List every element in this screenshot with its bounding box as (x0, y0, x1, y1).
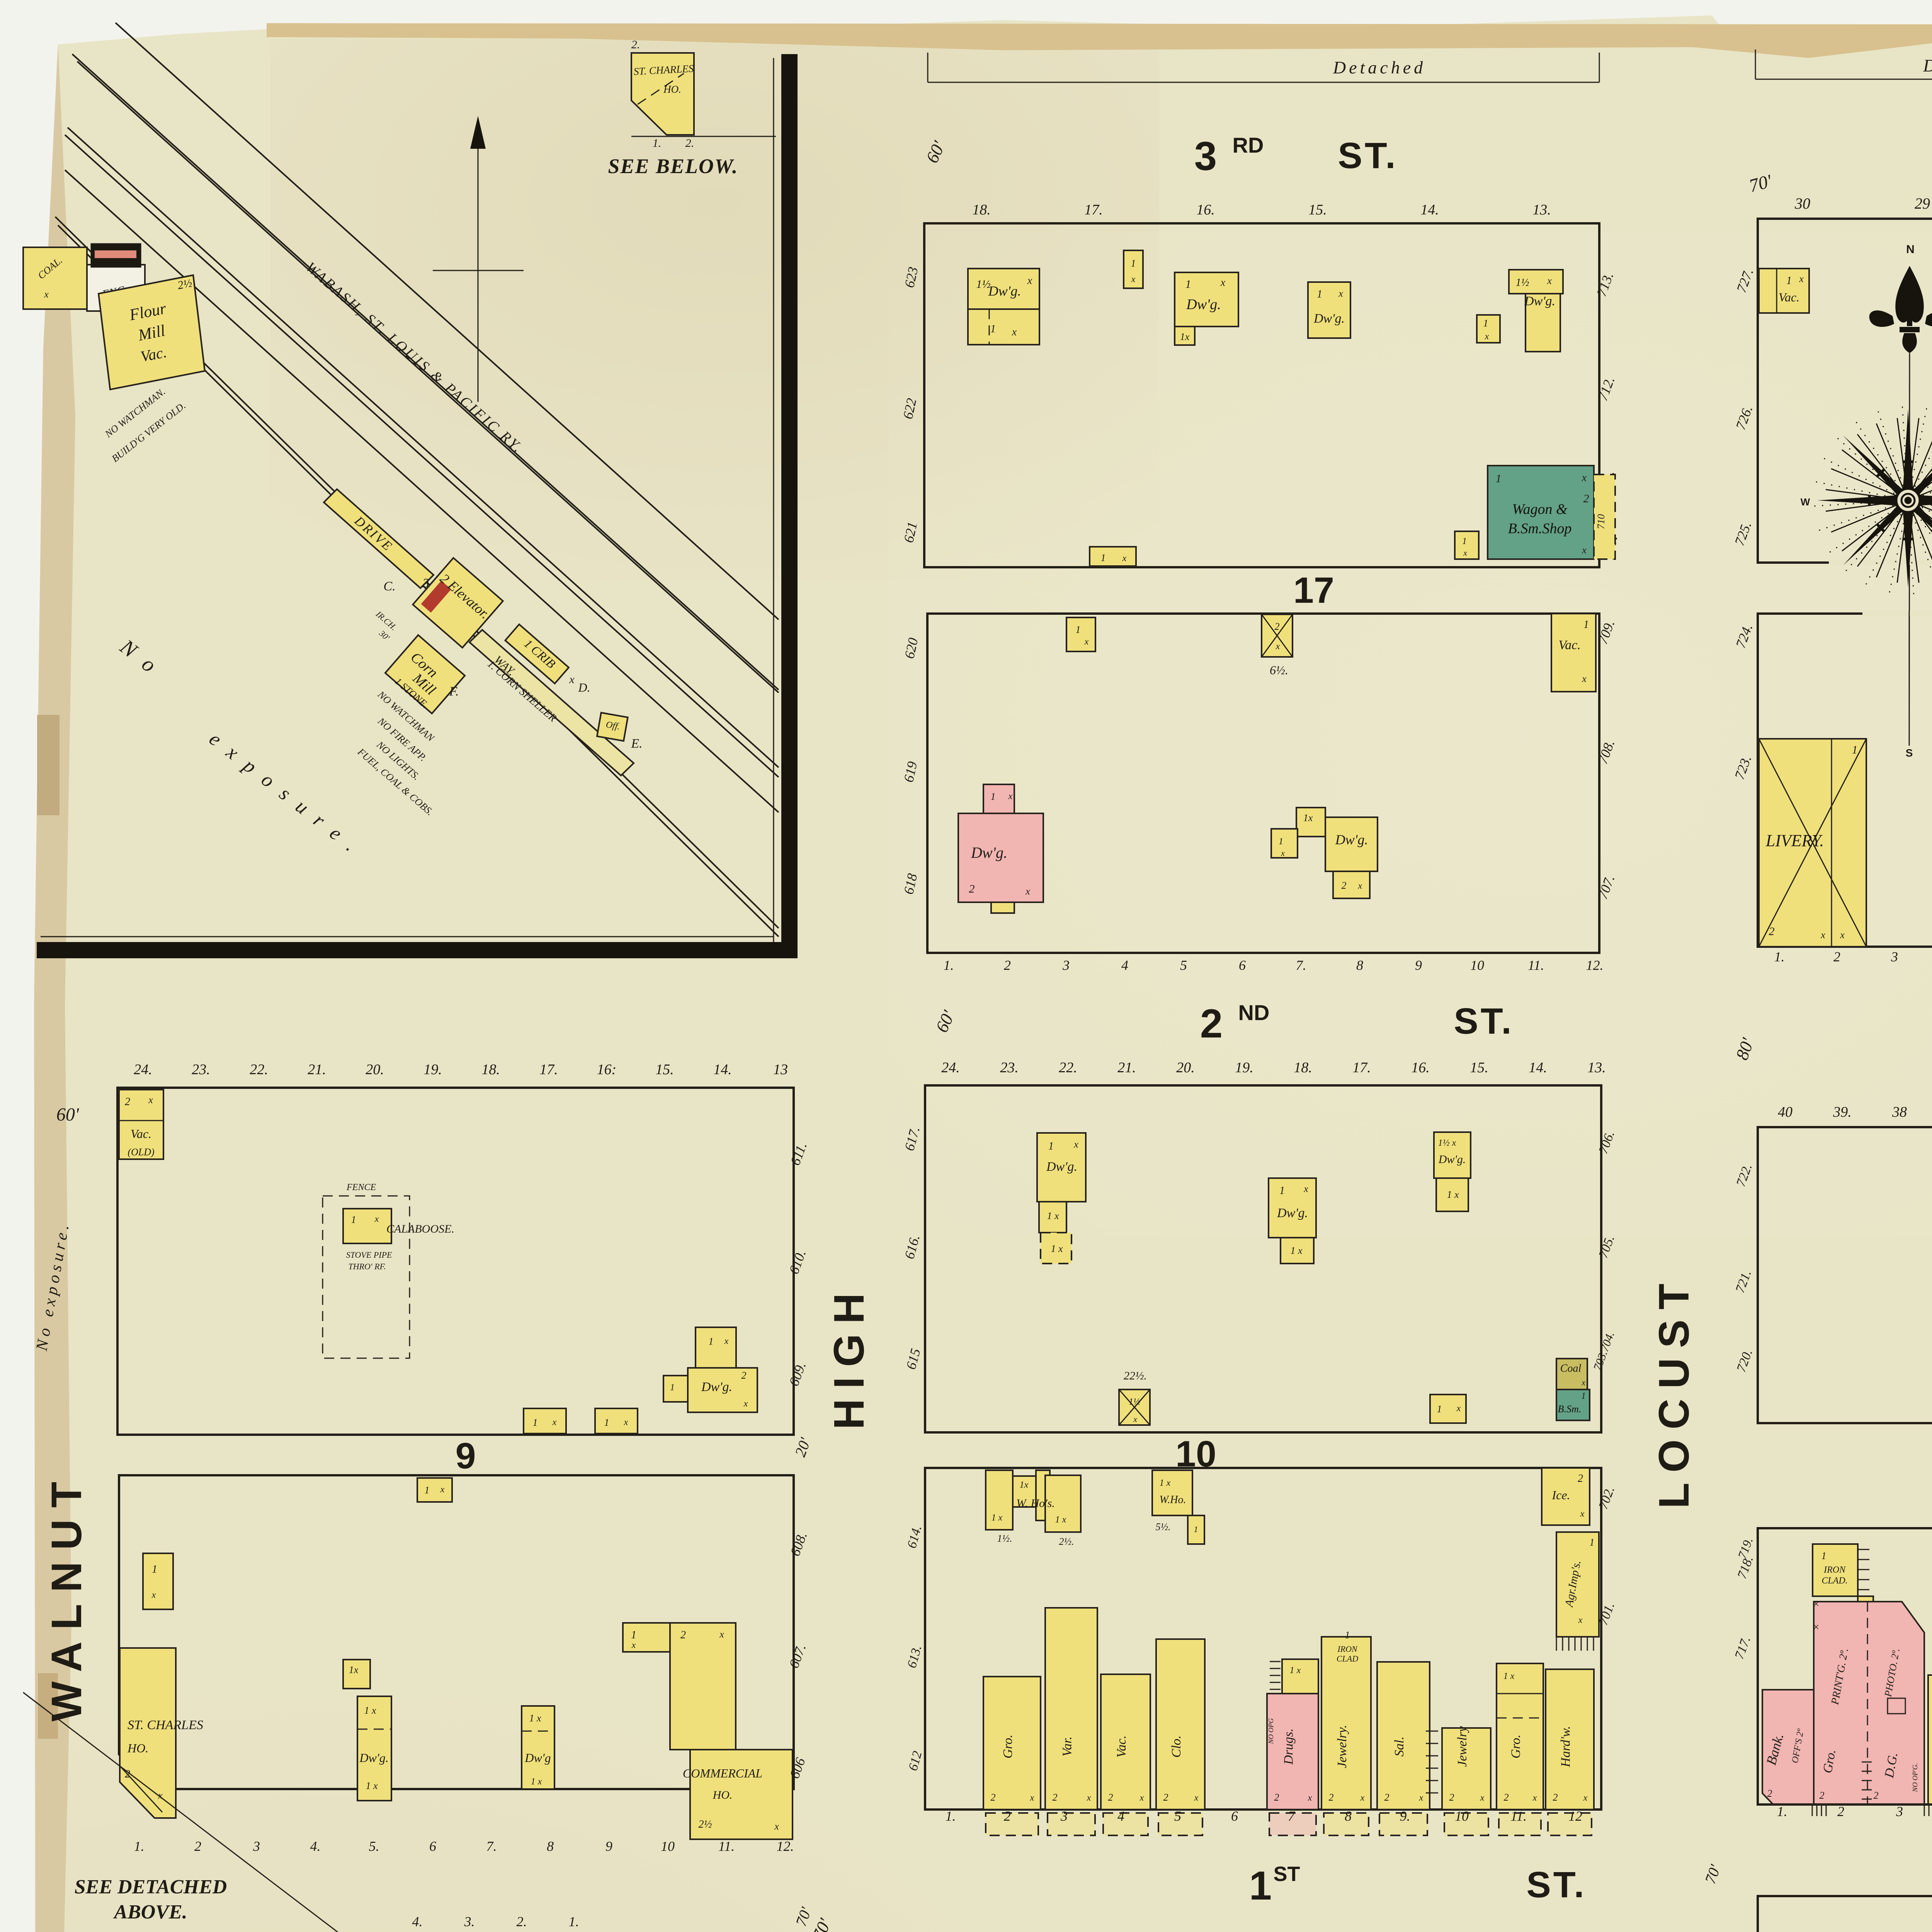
svg-text:1: 1 (1583, 619, 1589, 631)
svg-text:1 x: 1 x (529, 1713, 541, 1724)
svg-text:E.: E. (631, 736, 642, 751)
svg-text:1: 1 (1317, 288, 1322, 300)
svg-text:Vac.: Vac. (1779, 290, 1799, 304)
svg-text:8: 8 (1345, 1808, 1352, 1824)
svg-text:18.: 18. (972, 202, 991, 218)
svg-text:20.: 20. (1176, 1060, 1195, 1076)
svg-text:9: 9 (1415, 957, 1422, 973)
svg-text:Jewelry.: Jewelry. (1335, 1725, 1349, 1768)
svg-text:1x: 1x (1303, 812, 1313, 823)
svg-text:11.: 11. (1510, 1808, 1527, 1824)
svg-text:1½.: 1½. (997, 1533, 1012, 1544)
svg-text:2: 2 (1108, 1792, 1113, 1803)
svg-text:1 x: 1 x (1290, 1665, 1301, 1675)
svg-text:SEE DETACHED: SEE DETACHED (75, 1876, 227, 1898)
svg-text:1: 1 (533, 1417, 538, 1428)
svg-text:x: x (1582, 472, 1587, 484)
svg-text:1: 1 (604, 1417, 609, 1428)
svg-text:16:: 16: (597, 1061, 617, 1078)
svg-text:x: x (1358, 881, 1362, 891)
svg-text:24.: 24. (134, 1061, 152, 1078)
svg-text:15.: 15. (1470, 1060, 1488, 1076)
svg-text:Dw'g.: Dw'g. (988, 283, 1021, 299)
svg-text:8: 8 (1356, 957, 1363, 973)
svg-text:WALNUT: WALNUT (43, 1470, 90, 1721)
svg-text:Jewelry: Jewelry (1455, 1726, 1469, 1767)
svg-text:60': 60' (56, 1104, 79, 1125)
svg-text:x: x (1419, 1793, 1423, 1803)
svg-text:ST.: ST. (1338, 135, 1398, 176)
svg-text:W: W (1801, 496, 1810, 508)
svg-text:1: 1 (1590, 1537, 1595, 1548)
svg-text:1: 1 (1437, 1403, 1442, 1415)
svg-text:1: 1 (1786, 275, 1792, 287)
svg-text:3: 3 (1194, 134, 1217, 179)
svg-text:IRON: IRON (1337, 1644, 1358, 1654)
svg-text:Detached: Detached (1333, 58, 1426, 77)
svg-text:x: x (743, 1399, 748, 1409)
svg-text:W.Ho.: W.Ho. (1160, 1494, 1186, 1506)
svg-text:S: S (1906, 747, 1913, 759)
svg-text:1: 1 (1462, 536, 1467, 546)
svg-text:HO.: HO. (663, 83, 681, 95)
svg-text:1½: 1½ (1129, 1397, 1140, 1407)
svg-text:Dw'g.: Dw'g. (971, 844, 1007, 861)
svg-text:1: 1 (1131, 258, 1136, 269)
svg-text:1x: 1x (1020, 1480, 1029, 1490)
svg-text:×: × (1813, 1598, 1820, 1610)
svg-text:2: 2 (1504, 1792, 1509, 1803)
svg-text:x: x (1030, 1793, 1034, 1803)
svg-text:4.: 4. (412, 1914, 423, 1929)
svg-text:2: 2 (1200, 1001, 1223, 1046)
svg-text:2: 2 (1833, 949, 1840, 964)
svg-text:NO OP'G.: NO OP'G. (1911, 1763, 1919, 1793)
svg-text:x: x (1194, 1793, 1199, 1803)
svg-text:2: 2 (1004, 1808, 1011, 1824)
svg-text:1.: 1. (1774, 949, 1785, 964)
svg-text:16.: 16. (1196, 202, 1215, 218)
svg-text:FENCE: FENCE (346, 1182, 376, 1192)
svg-text:1: 1 (1185, 278, 1191, 291)
svg-text:2: 2 (1583, 492, 1589, 505)
svg-text:IRON: IRON (1823, 1565, 1846, 1575)
svg-text:Dw'g.: Dw'g. (359, 1751, 388, 1765)
svg-text:x: x (1463, 548, 1467, 558)
svg-text:4.: 4. (310, 1838, 321, 1854)
svg-text:Vac.: Vac. (131, 1127, 151, 1141)
svg-text:8: 8 (547, 1838, 554, 1854)
svg-text:Ice.: Ice. (1551, 1488, 1570, 1502)
svg-text:x: x (1485, 332, 1489, 342)
svg-text:21.: 21. (1117, 1060, 1136, 1076)
svg-text:3: 3 (422, 576, 429, 590)
svg-text:x: x (1532, 1793, 1537, 1803)
svg-text:18.: 18. (481, 1061, 500, 1078)
svg-text:9: 9 (456, 1435, 476, 1476)
svg-text:x: x (1012, 326, 1017, 338)
svg-text:9.: 9. (1400, 1808, 1410, 1824)
svg-text:16.: 16. (1411, 1060, 1430, 1076)
svg-text:x: x (148, 1094, 153, 1105)
svg-text:1 x: 1 x (1160, 1478, 1171, 1488)
svg-text:ND: ND (1238, 1000, 1270, 1025)
svg-text:2.: 2. (517, 1914, 527, 1929)
svg-text:Dw'g.: Dw'g. (1186, 296, 1221, 313)
svg-text:10: 10 (1470, 957, 1484, 973)
svg-text:19.: 19. (423, 1061, 442, 1078)
svg-text:21.: 21. (308, 1061, 326, 1078)
svg-text:C.: C. (383, 579, 395, 594)
svg-text:Vac.: Vac. (1114, 1735, 1129, 1758)
svg-text:1: 1 (1101, 552, 1106, 563)
svg-text:x: x (1582, 673, 1587, 684)
svg-text:30: 30 (1794, 195, 1810, 212)
svg-text:1: 1 (1279, 1185, 1285, 1197)
svg-text:Dw'g.: Dw'g. (1313, 311, 1345, 326)
svg-text:2: 2 (991, 1792, 996, 1803)
svg-text:15.: 15. (655, 1061, 674, 1078)
svg-text:1.: 1. (1777, 1804, 1787, 1819)
svg-text:1: 1 (1496, 472, 1502, 485)
svg-text:ABOVE.: ABOVE. (113, 1901, 187, 1923)
svg-text:5.: 5. (369, 1838, 379, 1854)
svg-text:RD: RD (1233, 133, 1264, 157)
svg-text:HO.: HO. (127, 1741, 148, 1755)
svg-text:CALABOOSE.: CALABOOSE. (386, 1223, 454, 1235)
svg-text:10: 10 (661, 1838, 675, 1854)
svg-text:2½.: 2½. (1059, 1536, 1074, 1547)
svg-text:3: 3 (253, 1838, 260, 1854)
svg-text:22.: 22. (1059, 1060, 1077, 1076)
svg-text:40: 40 (1778, 1104, 1793, 1120)
svg-text:x: x (1583, 1793, 1588, 1803)
svg-text:9: 9 (605, 1838, 612, 1854)
svg-text:1 x: 1 x (992, 1513, 1003, 1523)
svg-text:x: x (1025, 886, 1030, 897)
svg-text:COMMERCIAL: COMMERCIAL (683, 1766, 762, 1780)
svg-text:39.: 39. (1833, 1104, 1852, 1120)
svg-text:13: 13 (773, 1061, 788, 1078)
svg-text:x: x (624, 1417, 628, 1427)
svg-text:STOVE PIPE: STOVE PIPE (346, 1250, 392, 1260)
svg-text:Dw'g.: Dw'g. (1524, 294, 1555, 308)
svg-text:19.: 19. (1235, 1060, 1253, 1076)
svg-text:1.: 1. (653, 137, 662, 150)
svg-text:7: 7 (1288, 1808, 1296, 1824)
svg-text:13.: 13. (1587, 1060, 1606, 1076)
svg-text:Clo.: Clo. (1169, 1735, 1184, 1758)
svg-text:LIVERY.: LIVERY. (1765, 831, 1824, 850)
svg-text:×: × (1813, 1621, 1820, 1633)
svg-text:6: 6 (429, 1838, 436, 1854)
svg-text:2: 2 (1578, 1473, 1583, 1485)
svg-text:Var.: Var. (1060, 1736, 1075, 1757)
svg-text:B.Sm.Shop: B.Sm.Shop (1508, 520, 1572, 537)
svg-text:1 x: 1 x (1290, 1245, 1303, 1256)
svg-text:23.: 23. (192, 1061, 210, 1078)
svg-text:1 x: 1 x (1047, 1210, 1059, 1221)
svg-text:x: x (374, 1214, 379, 1224)
svg-text:2: 2 (1767, 1788, 1772, 1799)
svg-text:1 x: 1 x (366, 1780, 378, 1791)
svg-text:Dw'g.: Dw'g. (1438, 1153, 1466, 1166)
svg-text:x: x (1276, 641, 1280, 651)
svg-text:Dw'g.: Dw'g. (701, 1380, 732, 1394)
svg-text:1: 1 (991, 791, 996, 802)
svg-text:x: x (1580, 1509, 1585, 1519)
svg-text:x: x (719, 1629, 724, 1640)
svg-text:1: 1 (990, 323, 996, 335)
svg-text:1: 1 (1821, 1550, 1827, 1561)
svg-text:ST: ST (1273, 1862, 1300, 1886)
svg-text:2½: 2½ (699, 1818, 712, 1830)
svg-text:11.: 11. (718, 1838, 735, 1854)
svg-text:1: 1 (1581, 1391, 1586, 1401)
svg-text:x: x (1220, 277, 1226, 289)
svg-text:x: x (1139, 1793, 1144, 1803)
svg-text:x: x (44, 289, 49, 300)
svg-text:1.: 1. (569, 1914, 579, 1929)
svg-text:Coal: Coal (1560, 1362, 1582, 1374)
svg-text:12: 12 (1568, 1808, 1582, 1824)
svg-text:ST.: ST. (1526, 1864, 1586, 1905)
svg-text:x: x (1308, 1793, 1312, 1803)
svg-text:2: 2 (1342, 880, 1347, 891)
svg-text:2: 2 (969, 883, 975, 895)
svg-text:1 x: 1 x (364, 1705, 376, 1716)
svg-text:Gro.: Gro. (1001, 1735, 1015, 1759)
svg-text:1: 1 (1852, 743, 1858, 756)
svg-text:1: 1 (152, 1563, 157, 1575)
svg-text:1: 1 (1279, 837, 1283, 847)
svg-text:3: 3 (1062, 957, 1070, 973)
svg-text:15.: 15. (1308, 202, 1327, 218)
svg-text:W. Ho's.: W. Ho's. (1016, 1497, 1055, 1510)
svg-text:(OLD): (OLD) (128, 1146, 154, 1158)
svg-text:5: 5 (1180, 957, 1187, 973)
svg-text:2: 2 (1053, 1792, 1058, 1803)
svg-text:HO.: HO. (713, 1789, 733, 1801)
svg-text:x: x (1547, 275, 1552, 286)
svg-text:2: 2 (1449, 1792, 1454, 1803)
svg-text:2: 2 (1163, 1792, 1168, 1803)
svg-text:x: x (151, 1590, 156, 1600)
svg-text:D w'gs.: D w'gs. (1923, 56, 1932, 75)
svg-text:x: x (569, 673, 575, 686)
svg-text:x: x (1087, 1793, 1091, 1803)
svg-text:x: x (724, 1336, 729, 1346)
svg-text:1: 1 (1483, 318, 1488, 329)
svg-text:2: 2 (1820, 1790, 1825, 1801)
svg-text:S‌T. CHARLES: S‌T. CHARLES (128, 1718, 203, 1732)
svg-text:3: 3 (1060, 1808, 1068, 1824)
svg-text:x: x (1303, 1183, 1308, 1194)
svg-text:29: 29 (1915, 195, 1930, 212)
svg-text:Gro.: Gro. (1509, 1735, 1523, 1759)
svg-text:x: x (1027, 275, 1032, 287)
svg-text:1: 1 (1076, 624, 1081, 635)
svg-text:x: x (1820, 929, 1825, 940)
svg-text:NO OPG: NO OPG (1267, 1718, 1275, 1745)
svg-text:14.: 14. (1529, 1060, 1547, 1076)
svg-text:2: 2 (680, 1629, 686, 1641)
svg-text:x: x (1084, 637, 1089, 647)
svg-text:4: 4 (1117, 1808, 1124, 1824)
svg-text:11.: 11. (1528, 957, 1544, 973)
svg-text:2: 2 (1553, 1792, 1558, 1803)
svg-text:x: x (1073, 1139, 1078, 1150)
svg-text:THRO' RF.: THRO' RF. (348, 1262, 386, 1271)
svg-text:6: 6 (1231, 1808, 1238, 1824)
svg-text:x: x (1360, 1793, 1365, 1803)
svg-text:2: 2 (742, 1370, 747, 1381)
svg-text:1.: 1. (946, 1808, 956, 1824)
svg-text:Hard'w.: Hard'w. (1559, 1726, 1573, 1767)
svg-text:1: 1 (1249, 1863, 1272, 1908)
svg-text:1x: 1x (1180, 331, 1190, 342)
svg-text:2: 2 (1837, 1804, 1844, 1819)
svg-text:2: 2 (1004, 957, 1011, 973)
svg-text:SEE BELOW.: SEE BELOW. (608, 155, 738, 178)
svg-text:2: 2 (1874, 1790, 1879, 1801)
svg-text:Sal.: Sal. (1392, 1736, 1406, 1757)
svg-text:1½: 1½ (1516, 277, 1529, 289)
svg-text:ST.: ST. (1454, 1001, 1514, 1042)
svg-text:x: x (552, 1417, 557, 1427)
svg-text:2: 2 (125, 1096, 130, 1108)
svg-text:3: 3 (1896, 1804, 1903, 1819)
svg-text:Dw'g.: Dw'g. (1335, 832, 1368, 847)
svg-text:22.: 22. (250, 1061, 268, 1078)
svg-text:1 x: 1 x (1055, 1515, 1066, 1525)
svg-text:x: x (1008, 791, 1013, 801)
svg-text:7.: 7. (486, 1838, 497, 1854)
svg-text:2: 2 (1274, 1792, 1279, 1803)
svg-text:17: 17 (1293, 570, 1334, 611)
svg-text:1: 1 (425, 1485, 430, 1496)
svg-text:x: x (631, 1640, 636, 1650)
svg-text:1.: 1. (944, 957, 954, 973)
svg-text:1 x: 1 x (1447, 1189, 1459, 1200)
svg-text:7.: 7. (1296, 957, 1306, 973)
svg-text:12.: 12. (777, 1838, 794, 1854)
svg-text:CLAD: CLAD (1337, 1654, 1358, 1663)
svg-text:B.Sm.: B.Sm. (1558, 1403, 1582, 1415)
svg-text:2: 2 (1329, 1792, 1334, 1803)
svg-text:6: 6 (1239, 957, 1246, 973)
svg-text:2: 2 (1769, 925, 1775, 938)
svg-text:2: 2 (1275, 621, 1280, 632)
svg-text:x: x (1582, 544, 1587, 556)
svg-text:1½ x: 1½ x (1438, 1138, 1456, 1148)
svg-text:710: 710 (1595, 514, 1607, 529)
svg-text:LOCUST: LOCUST (1650, 1274, 1698, 1509)
svg-text:38: 38 (1892, 1104, 1907, 1120)
svg-text:6½.: 6½. (1270, 663, 1288, 677)
svg-text:5: 5 (1174, 1808, 1181, 1824)
svg-text:x: x (1122, 553, 1127, 563)
svg-text:12.: 12. (1586, 957, 1604, 973)
svg-text:2: 2 (1384, 1792, 1389, 1803)
svg-text:3: 3 (1891, 949, 1898, 964)
svg-text:1x: 1x (349, 1664, 359, 1675)
svg-text:1: 1 (709, 1336, 714, 1347)
svg-text:x: x (1133, 1414, 1137, 1424)
svg-text:13.: 13. (1532, 202, 1551, 218)
svg-text:14.: 14. (713, 1061, 732, 1078)
svg-text:1.: 1. (134, 1838, 145, 1854)
svg-text:1: 1 (1345, 1629, 1350, 1641)
svg-text:1 x: 1 x (1503, 1671, 1515, 1681)
svg-text:HIGH: HIGH (825, 1283, 873, 1430)
svg-text:2.: 2. (685, 137, 694, 150)
svg-text:CLAD.: CLAD. (1821, 1576, 1847, 1586)
svg-text:17.: 17. (539, 1061, 558, 1078)
svg-text:Vac.: Vac. (1558, 638, 1581, 652)
svg-text:x: x (1338, 288, 1343, 299)
svg-text:14.: 14. (1420, 202, 1439, 218)
svg-text:5½.: 5½. (1156, 1521, 1171, 1532)
svg-text:x: x (1480, 1793, 1485, 1803)
svg-text:3.: 3. (464, 1914, 475, 1929)
svg-text:1: 1 (1048, 1140, 1054, 1152)
svg-text:23.: 23. (1000, 1060, 1019, 1076)
svg-text:10: 10 (1455, 1808, 1469, 1824)
svg-text:4: 4 (1121, 957, 1128, 973)
svg-text:1 x: 1 x (531, 1777, 542, 1787)
svg-text:x: x (1578, 1615, 1583, 1625)
svg-text:1 x: 1 x (1051, 1243, 1063, 1254)
svg-text:x: x (440, 1485, 445, 1495)
svg-text:2: 2 (194, 1838, 201, 1854)
svg-text:20.: 20. (366, 1061, 384, 1078)
svg-text:1: 1 (631, 1629, 636, 1641)
svg-text:x: x (1799, 273, 1804, 284)
svg-text:18.: 18. (1294, 1060, 1312, 1076)
svg-text:x: x (1281, 848, 1285, 858)
svg-text:Dw'g.: Dw'g. (1277, 1206, 1308, 1220)
svg-text:24.: 24. (941, 1060, 960, 1076)
svg-text:x: x (1131, 274, 1136, 284)
svg-text:x: x (1581, 1378, 1585, 1387)
svg-text:17.: 17. (1084, 202, 1103, 218)
svg-text:x: x (1456, 1403, 1461, 1413)
svg-text:Dw'g: Dw'g (524, 1751, 551, 1765)
svg-text:Wagon &: Wagon & (1512, 501, 1568, 517)
svg-text:1: 1 (351, 1214, 356, 1225)
svg-text:2½: 2½ (177, 277, 193, 292)
svg-text:2.: 2. (631, 38, 640, 51)
svg-text:N: N (1906, 243, 1915, 256)
svg-text:22½.: 22½. (1124, 1369, 1147, 1382)
svg-text:x: x (774, 1821, 779, 1832)
svg-text:x: x (1840, 929, 1845, 940)
svg-text:Drugs.: Drugs. (1282, 1728, 1296, 1765)
svg-text:1: 1 (1194, 1524, 1198, 1534)
svg-text:D.: D. (578, 680, 590, 694)
svg-text:1: 1 (670, 1383, 675, 1393)
svg-text:F.: F. (449, 684, 459, 699)
svg-text:17.: 17. (1352, 1060, 1371, 1076)
svg-text:Dw'g.: Dw'g. (1046, 1160, 1077, 1174)
